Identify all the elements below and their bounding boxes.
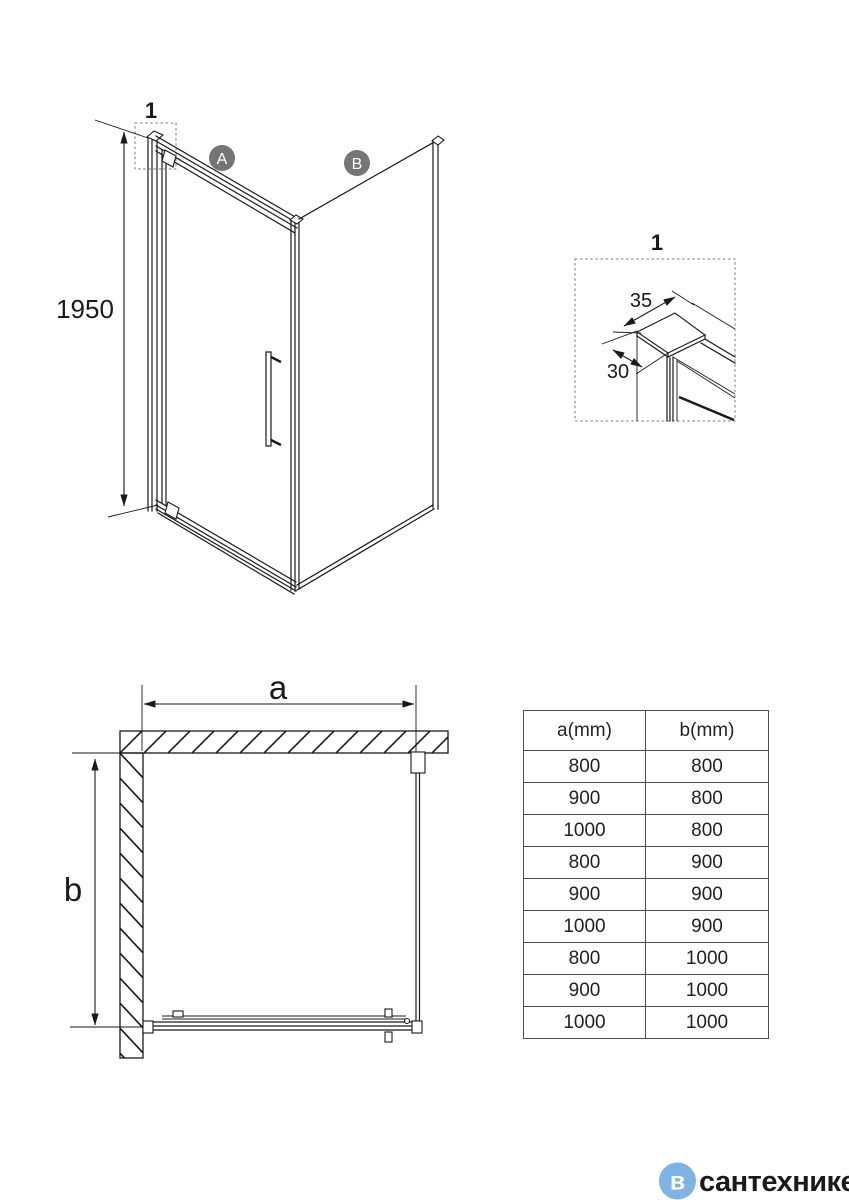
page: A B 1 1950 1: [0, 0, 849, 1200]
col-a-header: a(mm): [524, 711, 646, 751]
table-row: 900 1000: [524, 975, 769, 1007]
col-b-header: b(mm): [646, 711, 769, 751]
wall-profile-left: [147, 131, 163, 511]
cell-b: 1000: [646, 975, 769, 1007]
panel-b-badge-label: B: [352, 156, 363, 173]
dimension-b-label: b: [64, 871, 82, 908]
cell-a: 1000: [524, 911, 646, 943]
table-row: 1000 900: [524, 911, 769, 943]
table-row: 800 900: [524, 847, 769, 879]
cell-b: 800: [646, 815, 769, 847]
corner-profile-section: [637, 303, 735, 421]
height-dimension: 1950: [56, 120, 158, 517]
door-panel-a: [156, 136, 297, 594]
cell-b: 900: [646, 847, 769, 879]
table-row: 1000 800: [524, 815, 769, 847]
cell-a: 800: [524, 847, 646, 879]
dimension-30-value: 30: [607, 361, 629, 383]
size-table-header-row: a(mm) b(mm): [524, 711, 769, 751]
wall-top: [120, 731, 448, 753]
hinge-bottom: [165, 502, 179, 519]
cell-b: 800: [646, 783, 769, 815]
dimension-35-value: 35: [630, 290, 652, 312]
cell-a: 1000: [524, 815, 646, 847]
isometric-view: A B 1 1950: [40, 90, 460, 660]
panel-a-badge-label: A: [217, 151, 228, 168]
cell-a: 900: [524, 975, 646, 1007]
cell-b: 1000: [646, 943, 769, 975]
size-table: a(mm) b(mm) 800 800 900 800 1000 800 800…: [523, 710, 769, 1039]
detail-callout-number: 1: [145, 98, 157, 123]
plan-view: a b: [40, 670, 470, 1070]
door-handle: [266, 352, 281, 446]
wall-bracket-top: [411, 752, 425, 773]
table-row: 800 1000: [524, 943, 769, 975]
door-pivot: [173, 1011, 183, 1017]
panel-b-badge: B: [344, 150, 370, 176]
corner-bracket-right: [412, 1021, 422, 1033]
wall-left: [120, 753, 143, 1058]
cell-a: 1000: [524, 1007, 646, 1039]
table-row: 800 800: [524, 751, 769, 783]
door-stop: [405, 1019, 410, 1024]
profile-top-cap: [147, 131, 163, 141]
side-panel-b: [297, 136, 444, 590]
door-left-stile: [162, 150, 166, 505]
cell-a: 800: [524, 943, 646, 975]
detail-view-number: 1: [651, 230, 663, 255]
cell-b: 900: [646, 879, 769, 911]
table-row: 1000 1000: [524, 1007, 769, 1039]
cell-a: 800: [524, 751, 646, 783]
hinge-top: [162, 150, 176, 167]
table-row: 900 800: [524, 783, 769, 815]
cell-b: 900: [646, 911, 769, 943]
corner-profile: [290, 215, 303, 591]
dimension-a-label: a: [269, 670, 288, 706]
watermark: в сантехнике: [654, 1158, 849, 1200]
plan-side-panel: [411, 752, 425, 1021]
detail-view: 1 35 30: [555, 225, 760, 435]
plan-door: [143, 1009, 422, 1042]
panel-a-badge: A: [209, 145, 235, 171]
watermark-icon-letter: в: [670, 1168, 685, 1196]
wall-bracket-left: [143, 1021, 153, 1033]
height-dimension-value: 1950: [56, 294, 114, 324]
watermark-brand-text: сантехнике: [699, 1166, 849, 1198]
cell-a: 900: [524, 783, 646, 815]
wall-profile-right: [433, 140, 438, 509]
cell-b: 800: [646, 751, 769, 783]
cell-a: 900: [524, 879, 646, 911]
table-row: 900 900: [524, 879, 769, 911]
cell-b: 1000: [646, 1007, 769, 1039]
